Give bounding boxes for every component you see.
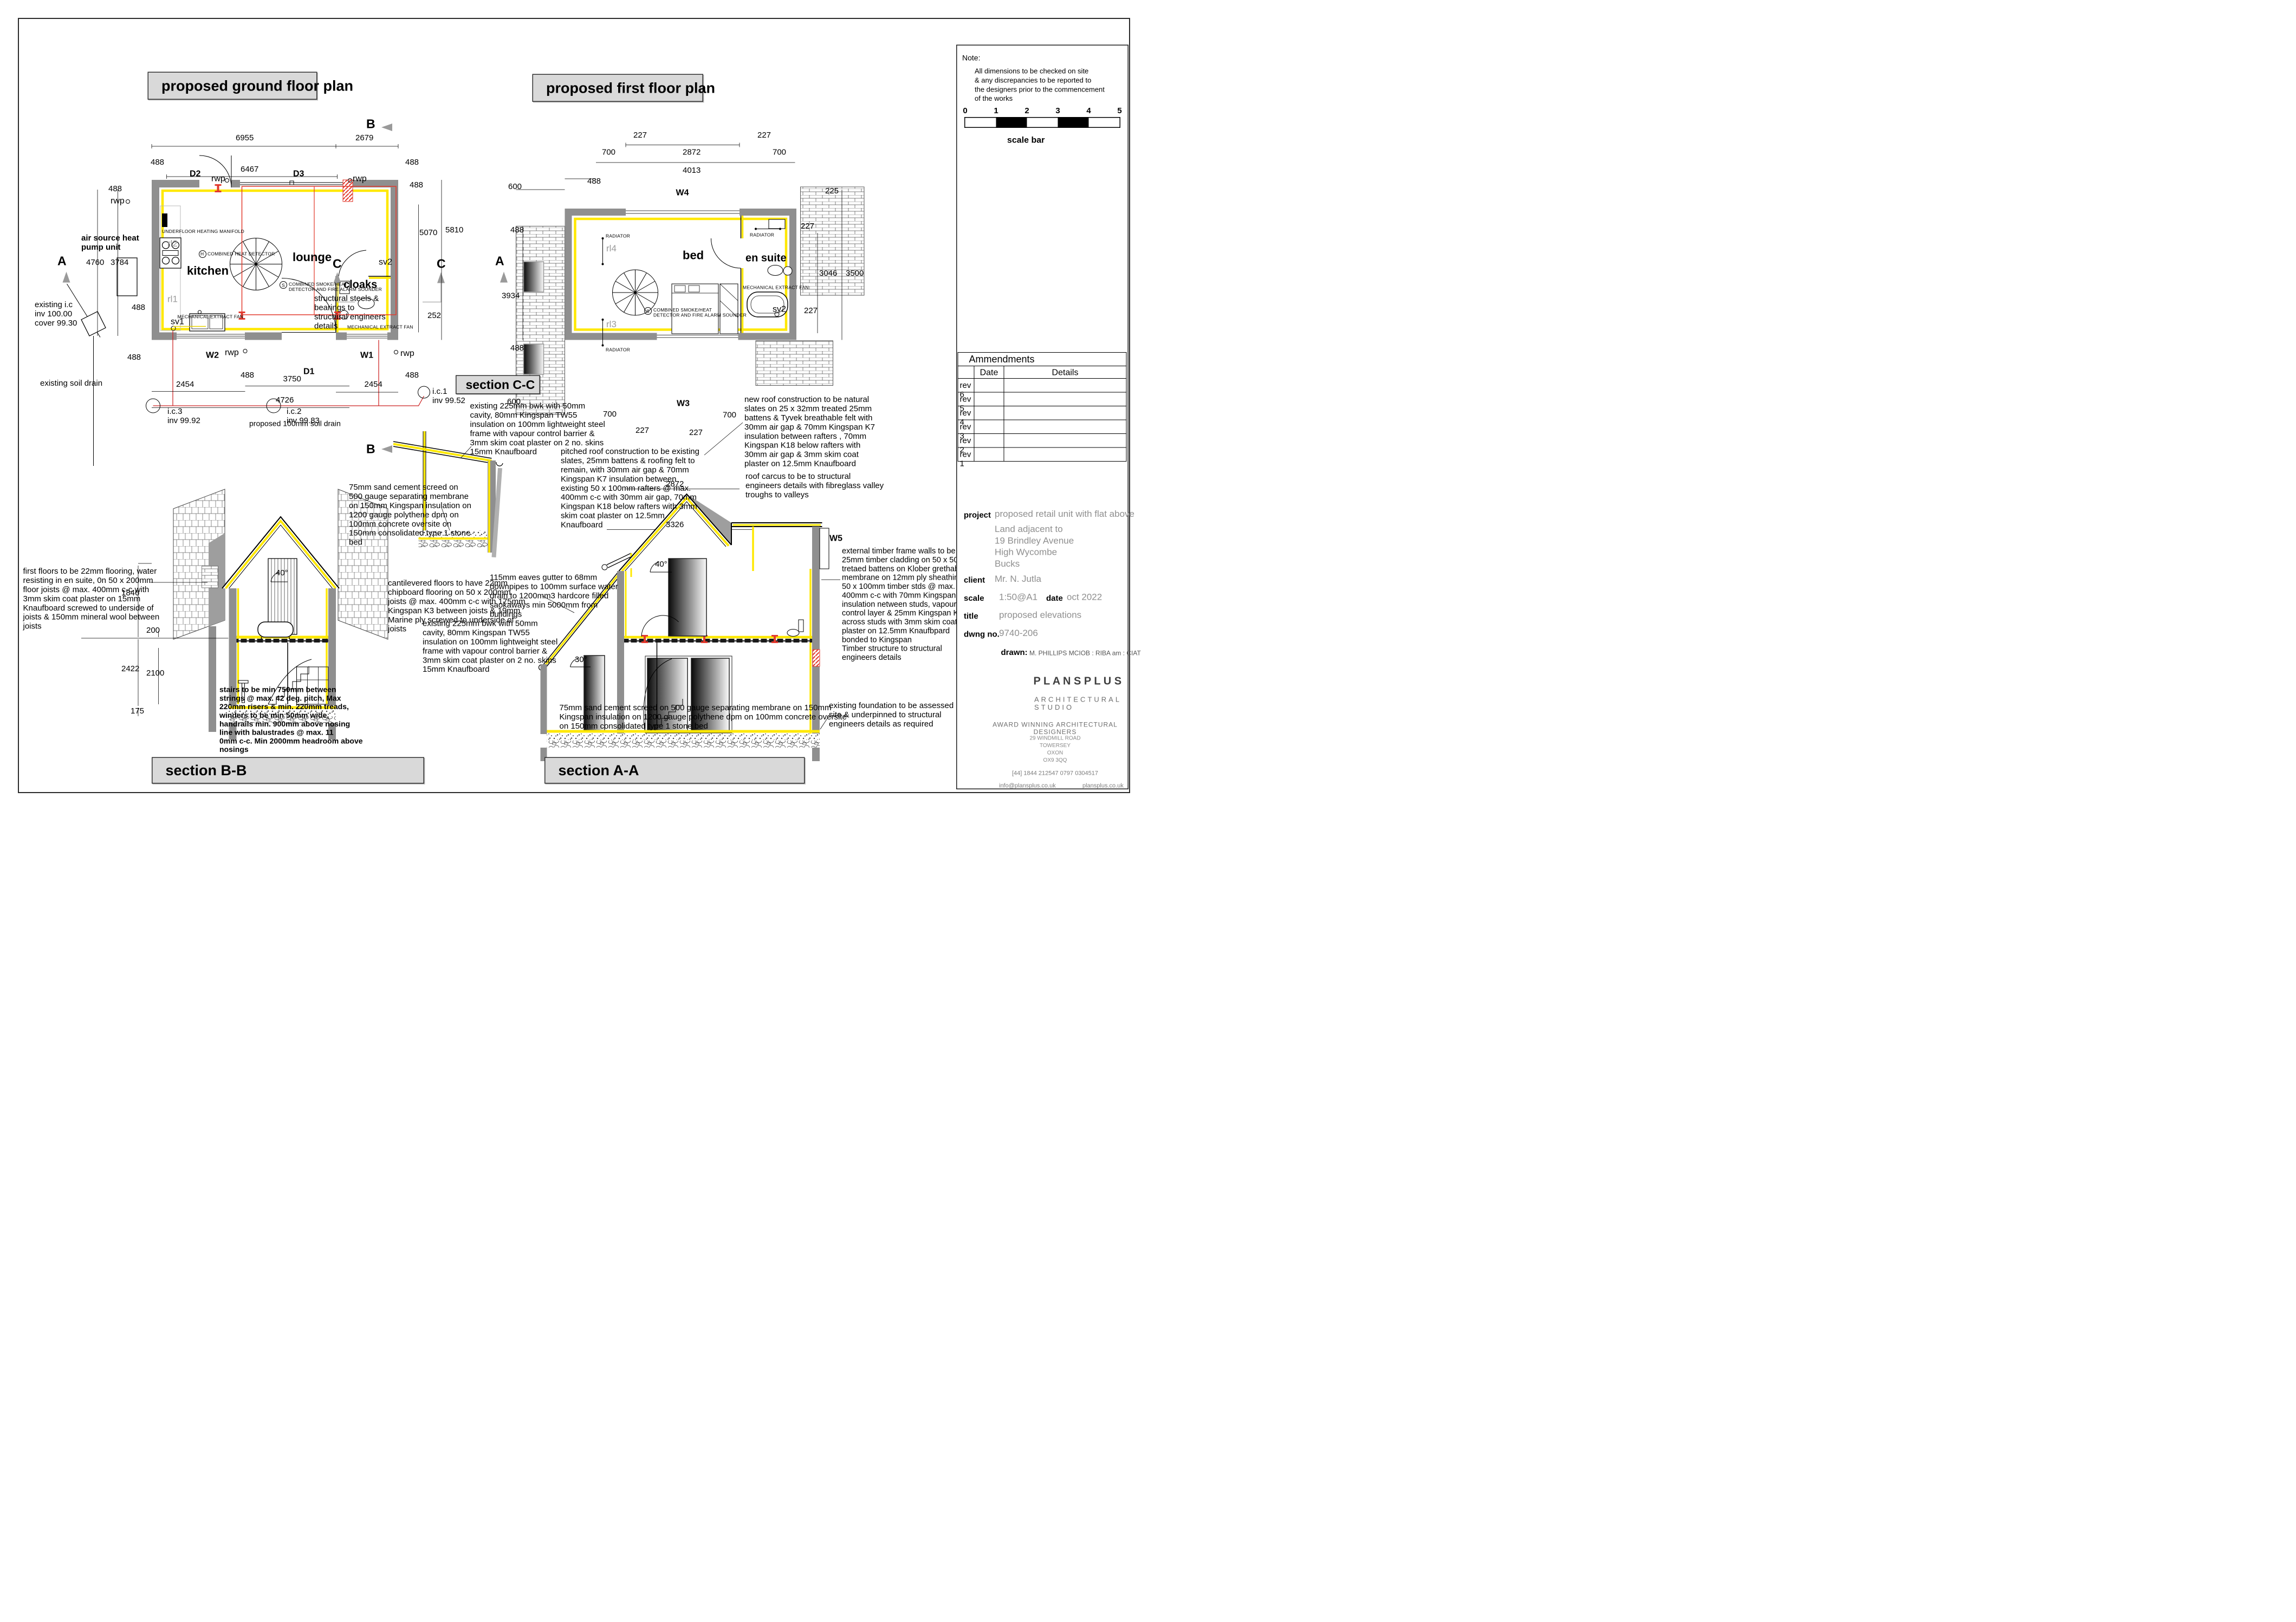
dim-2454-b1: 2454 <box>176 380 194 389</box>
ffdim-227-r1: 227 <box>801 222 814 231</box>
section-marker-a-gf: A <box>57 254 67 268</box>
dim-5070: 5070 <box>419 228 437 237</box>
ffdim-227-t1: 227 <box>633 131 647 140</box>
ref-w3: W3 <box>677 398 690 408</box>
section-bb-title-box: section B-B <box>152 757 424 784</box>
room-kitchen: kitchen <box>187 264 229 278</box>
bbdim-2422: 2422 <box>121 664 139 673</box>
amendments-table: Ammendments Date Details rev 6 rev 5 rev… <box>958 352 1127 462</box>
aadim-40deg: 40° <box>655 560 667 569</box>
sheet-stage: proposed ground floor plan proposed firs… <box>0 0 1148 811</box>
amendments-col-date: Date <box>975 366 1004 378</box>
firm-award: AWARD WINNING ARCHITECTURAL DESIGNERS <box>988 721 1123 736</box>
first-plan-title: proposed first floor plan <box>533 80 715 96</box>
scale-value: 1:50@A1 <box>999 592 1037 602</box>
ref-rl2: rl2 <box>167 238 178 249</box>
underfloor-label: UNDERFLOOR HEATING MANIFOLD <box>162 229 244 235</box>
ground-plan-title: proposed ground floor plan <box>148 77 353 94</box>
ref-w5: W5 <box>829 533 842 543</box>
dwng-value: 9740-206 <box>999 628 1038 638</box>
section-marker-a-ff: A <box>495 254 504 268</box>
smoke-symbol-ff: S <box>646 309 650 314</box>
rev-6-date <box>975 379 1004 392</box>
rev-3-details <box>1004 420 1126 434</box>
firm-phones: [44] 1844 212547 0797 0304517 <box>988 770 1123 776</box>
heat-detector-label: COMBINED HEAT DETECTOR <box>207 251 275 257</box>
aadim-30deg: 30° <box>575 655 587 664</box>
rev-5-details <box>1004 393 1126 406</box>
bbdim-1846: 1846 <box>121 588 139 598</box>
rev-5-date <box>975 393 1004 406</box>
dim-2679: 2679 <box>355 133 373 142</box>
ic1-label: i.c.1 inv 99.52 <box>432 387 465 405</box>
amendments-col-rev <box>958 366 975 378</box>
project-label: project <box>964 511 991 520</box>
dim-2454-b2: 2454 <box>365 380 382 389</box>
section-bb-title: section B-B <box>153 762 247 779</box>
mef-ensuite: MECHANICAL EXTRACT FAN <box>743 285 809 290</box>
rev-4: rev 4 <box>958 406 975 420</box>
scale-tick-2: 2 <box>1023 106 1031 115</box>
ffdim-700-b2: 700 <box>723 411 736 420</box>
ref-sv2-ff: sv2 <box>773 304 786 314</box>
note-cc-pitched: pitched roof construction to be existing… <box>561 447 699 530</box>
section-aa-title-box: section A-A <box>544 757 805 784</box>
ground-plan-title-box: proposed ground floor plan <box>148 72 317 100</box>
existing-soil-label: existing soil drain <box>40 379 102 388</box>
firm-name: P L A N S P L U S <box>1034 675 1122 687</box>
bbdim-40deg: 40° <box>276 568 288 578</box>
rev-1-date <box>975 448 1004 462</box>
firm-web: plansplus.co.uk <box>1082 782 1124 789</box>
firm-email: info@plansplus.co.uk <box>999 782 1056 789</box>
note-cc-eaves: 115mm eaves gutter to 68mm downpipes to … <box>490 573 618 619</box>
scale-tick-1: 1 <box>992 106 1000 115</box>
spiral-stair-ground <box>230 238 282 290</box>
dim-4726: 4726 <box>276 395 294 405</box>
rev-4-date <box>975 406 1004 420</box>
ref-sv1: sv1 <box>171 316 184 326</box>
ref-rl4: rl4 <box>606 243 617 254</box>
drawn-value: M. PHILLIPS MCIOB : RIBA am : CIAT <box>1029 650 1141 657</box>
room-bed: bed <box>683 249 704 262</box>
ffdim-700-t1: 700 <box>602 148 615 157</box>
ref-w1: W1 <box>360 350 373 360</box>
date-label: date <box>1046 594 1063 603</box>
rev-6-details <box>1004 379 1126 392</box>
rwp-5: rwp <box>400 348 414 358</box>
ffdim-488-l2: 488 <box>510 343 524 353</box>
ref-rl1: rl1 <box>167 294 178 304</box>
bbdim-175: 175 <box>131 706 144 716</box>
ffdim-600: 600 <box>508 182 522 191</box>
title-label: title <box>964 612 978 621</box>
project-name: proposed retail unit with flat above <box>995 509 1134 519</box>
scale-bar <box>964 117 1120 128</box>
note-bb-floors: first floors to be 22mm flooring, water … <box>23 567 160 631</box>
dim-252: 252 <box>427 311 441 320</box>
dim-6955: 6955 <box>236 133 254 142</box>
ref-d1: D1 <box>303 366 314 376</box>
client-label: client <box>964 576 985 585</box>
dim-488-tr1: 488 <box>405 158 419 167</box>
ground-floor-plan <box>63 124 508 466</box>
dim-488-l1: 488 <box>108 184 122 193</box>
note-bb-stairs: stairs to be min 750mm between strings @… <box>219 685 363 754</box>
rev-5: rev 5 <box>958 393 975 406</box>
dim-3784: 3784 <box>111 258 128 267</box>
note-body: All dimensions to be checked on site & a… <box>975 67 1105 103</box>
rev-2-details <box>1004 434 1126 447</box>
rev-2: rev 2 <box>958 434 975 447</box>
room-ensuite: en suite <box>745 252 787 264</box>
rev-3: rev 3 <box>958 420 975 434</box>
radiator-rl4: RADIATOR <box>606 233 630 239</box>
ref-sv2-gf: sv2 <box>379 257 392 267</box>
dim-488-br: 488 <box>405 371 419 380</box>
ffdim-488-l1: 488 <box>510 225 524 235</box>
radiator-rl3: RADIATOR <box>606 347 630 353</box>
ic3-label: i.c.3 inv 99.92 <box>167 407 200 425</box>
drainage <box>94 331 430 466</box>
proposed-soil-label: proposed 100mm soil drain <box>249 419 341 428</box>
project-address: Land adjacent to 19 Brindley Avenue High… <box>995 523 1074 569</box>
section-marker-b-top: B <box>366 117 375 131</box>
section-marker-b-bottom: B <box>366 442 375 456</box>
drawn-label: drawn: <box>1001 648 1028 657</box>
dim-488-b1: 488 <box>127 353 141 362</box>
rev-4-details <box>1004 406 1126 420</box>
bbdim-200: 200 <box>146 626 160 635</box>
smoke-detector-label-gf: COMBINED SMOKE/HEAT DETECTOR AND FIRE AL… <box>289 282 382 292</box>
dim-4760: 4760 <box>86 258 104 267</box>
section-cc-title-box: section C-C <box>456 375 540 394</box>
ffdim-3500: 3500 <box>846 269 864 278</box>
drawing-sheet: proposed ground floor plan proposed firs… <box>0 0 1148 811</box>
scale-tick-0: 0 <box>961 106 969 115</box>
steels-note: structural steels & bearings to structur… <box>314 294 386 331</box>
heat-pump-label: air source heat pump unit <box>81 233 139 252</box>
heat-detector-symbol: H <box>200 251 204 257</box>
first-plan-title-box: proposed first floor plan <box>533 74 704 102</box>
client-value: Mr. N. Jutla <box>995 574 1041 584</box>
amendments-col-details: Details <box>1004 366 1126 378</box>
note-aa-timber: external timber frame walls to be 25mm t… <box>842 547 974 662</box>
rev-1: rev 1 <box>958 448 975 462</box>
ffdim-3934: 3934 <box>502 291 520 301</box>
note-bwk-repeat: existing 225mm bwk with 50mm cavity, 80m… <box>423 619 557 674</box>
ffdim-3046: 3046 <box>819 269 837 278</box>
dim-488-l2: 488 <box>132 303 145 312</box>
scale-tick-3: 3 <box>1054 106 1062 115</box>
ref-d3: D3 <box>293 168 304 178</box>
mef-label-kitchen: MECHANICAL EXTRACT FAN <box>178 314 244 320</box>
dim-6467: 6467 <box>241 165 258 174</box>
ref-w4: W4 <box>676 187 689 197</box>
bbdim-2100: 2100 <box>146 669 164 678</box>
note-label: Note: <box>962 54 980 62</box>
ref-rl3: rl3 <box>606 319 617 329</box>
note-aa-foundation: existing foundation to be assessed on si… <box>829 701 965 729</box>
note-cc-screed: 75mm sand cement screed on 500 gauge sep… <box>349 483 471 547</box>
ffdim-227-b1: 227 <box>635 426 649 435</box>
rev-6: rev 6 <box>958 379 975 392</box>
rwp-3: rwp <box>353 173 367 183</box>
ref-w2: W2 <box>206 350 219 360</box>
dim-488-tr2: 488 <box>410 180 423 190</box>
spiral-stair-first <box>613 270 658 315</box>
dim-488-tl: 488 <box>151 158 164 167</box>
rev-3-date <box>975 420 1004 434</box>
rwp-1: rwp <box>111 196 125 205</box>
rwp-2: rwp <box>211 173 225 183</box>
rev-2-date <box>975 434 1004 447</box>
note-ff-newroof: new roof construction to be natural slat… <box>744 395 875 469</box>
existing-ic-label: existing i.c inv 100.00 cover 99.30 <box>35 300 77 328</box>
section-marker-c-right: C <box>437 257 446 271</box>
section-cc-title: section C-C <box>457 378 535 392</box>
scale-tick-5: 5 <box>1115 106 1124 115</box>
ffdim-4013: 4013 <box>683 166 701 175</box>
dim-3750: 3750 <box>283 374 301 384</box>
title-value: proposed elevations <box>999 610 1081 620</box>
radiator-ensuite: RADIATOR <box>750 232 774 238</box>
smoke-detector-label-ff: COMBINED SMOKE/HEAT DETECTOR AND FIRE AL… <box>653 308 747 318</box>
scale-bar-label: scale bar <box>1007 135 1045 145</box>
section-aa-title: section A-A <box>546 762 639 779</box>
note-aa-screed: 75mm sand cement screed on 500 gauge sep… <box>560 703 847 731</box>
ref-d2: D2 <box>190 168 200 178</box>
dwng-label: dwng no. <box>964 630 1000 639</box>
scale-tick-4: 4 <box>1085 106 1093 115</box>
firm-studio: ARCHITECTURAL STUDIO <box>1034 696 1148 711</box>
ffdim-227-r2: 227 <box>804 306 818 315</box>
firm-address: 29 WINDMILL ROAD TOWERSEY OXON OX9 3QQ <box>988 735 1123 764</box>
rwp-4: rwp <box>225 347 239 357</box>
ffdim-700-t2: 700 <box>773 148 786 157</box>
ffdim-225: 225 <box>825 186 839 196</box>
section-marker-c-left: C <box>333 257 342 271</box>
ffdim-488-t: 488 <box>587 177 601 186</box>
date-value: oct 2022 <box>1067 592 1102 602</box>
ffdim-2872-t: 2872 <box>683 148 701 157</box>
dim-5810: 5810 <box>445 225 463 235</box>
ffdim-227-t2: 227 <box>757 131 771 140</box>
rev-1-details <box>1004 448 1126 462</box>
amendments-title: Ammendments <box>958 354 1035 365</box>
scale-label: scale <box>964 594 984 603</box>
dim-488-b2: 488 <box>241 371 254 380</box>
smoke-symbol-gf: S <box>282 283 285 288</box>
ffdim-227-b2: 227 <box>689 428 703 437</box>
room-lounge: lounge <box>293 251 332 264</box>
note-ff-carcus: roof carcus to be to structural engineer… <box>745 472 884 499</box>
